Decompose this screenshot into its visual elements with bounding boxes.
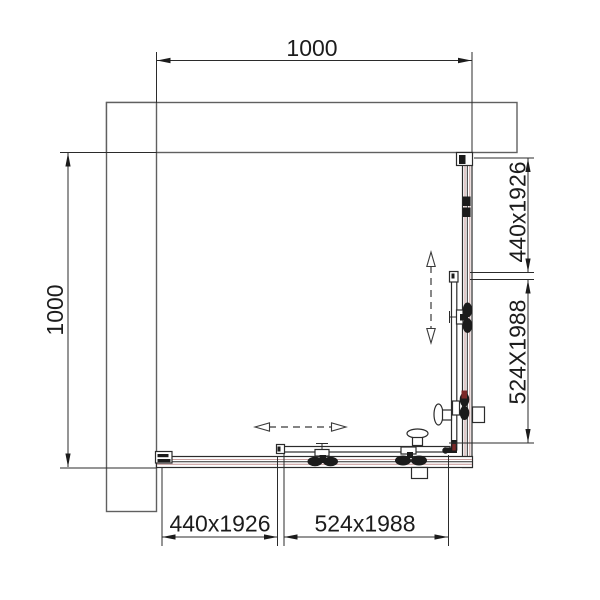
roller-wheel — [463, 303, 473, 318]
dim-label-right-fixed: 440x1926 — [505, 161, 531, 262]
roller-wheel — [411, 456, 427, 466]
arrowhead-right-icon — [332, 423, 347, 431]
wall-clamp — [463, 197, 471, 207]
door-panel — [452, 273, 457, 450]
dimension-right-fixed-panel: 440x1926 — [470, 158, 534, 273]
dim-arrow-icon — [435, 534, 449, 539]
right-sliding-door — [434, 272, 485, 451]
slide-direction-arrow-vertical — [427, 252, 435, 343]
drawing-canvas: 1000 1000 440x1926 524X1988 440x1926 — [0, 0, 600, 600]
arrowhead-up-icon — [427, 252, 435, 267]
top-wall — [107, 103, 518, 153]
handle-stem — [413, 438, 423, 446]
door-end-cap-insert — [452, 274, 455, 279]
door-panel — [278, 447, 450, 453]
lower-guide-bracket — [412, 468, 428, 479]
left-wall-bracket-insert — [158, 459, 171, 462]
outer-bracket — [473, 407, 485, 423]
dim-label-left: 1000 — [42, 284, 68, 335]
dim-arrow-icon — [458, 58, 472, 63]
handle-knob — [407, 429, 428, 438]
dim-arrow-icon — [525, 429, 530, 443]
roller-bracket — [453, 401, 460, 415]
dim-arrow-icon — [284, 534, 298, 539]
bottom-sliding-door — [277, 429, 451, 479]
roller-wheel — [323, 457, 338, 467]
roller-wheel — [460, 406, 470, 420]
dim-label-top: 1000 — [286, 35, 337, 61]
bottom-door-roller-right — [395, 429, 428, 479]
wall-clamp — [463, 208, 471, 218]
roller-wheel — [395, 456, 411, 466]
dim-label-bottom-door: 524x1988 — [314, 511, 415, 537]
dim-label-bottom-fixed: 440x1926 — [169, 511, 270, 537]
roller-wheel — [308, 457, 323, 467]
arrowhead-left-icon — [255, 423, 270, 431]
dim-arrow-icon — [157, 58, 171, 63]
handle-knob — [434, 404, 443, 425]
anti-jump-block — [462, 391, 468, 399]
slide-direction-arrow-horizontal — [255, 423, 346, 431]
dim-label-right-door: 524X1988 — [505, 300, 531, 405]
top-wall-bracket-insert — [459, 155, 466, 164]
corner-accent — [452, 444, 456, 451]
dim-arrow-icon — [525, 280, 530, 294]
dimension-bottom-fixed-panel: 440x1926 — [162, 456, 278, 546]
dim-arrow-icon — [65, 454, 70, 468]
door-end-cap-insert — [278, 447, 281, 452]
technical-drawing-shower-enclosure: 1000 1000 440x1926 524X1988 440x1926 — [0, 0, 600, 600]
roller-wheel — [463, 318, 473, 333]
handle-stem — [443, 410, 452, 420]
right-door-roller-lower — [434, 391, 485, 426]
dim-arrow-icon — [65, 153, 70, 167]
arrowhead-down-icon — [427, 329, 435, 344]
left-wall — [107, 103, 157, 512]
left-wall-bracket-insert — [158, 454, 169, 457]
